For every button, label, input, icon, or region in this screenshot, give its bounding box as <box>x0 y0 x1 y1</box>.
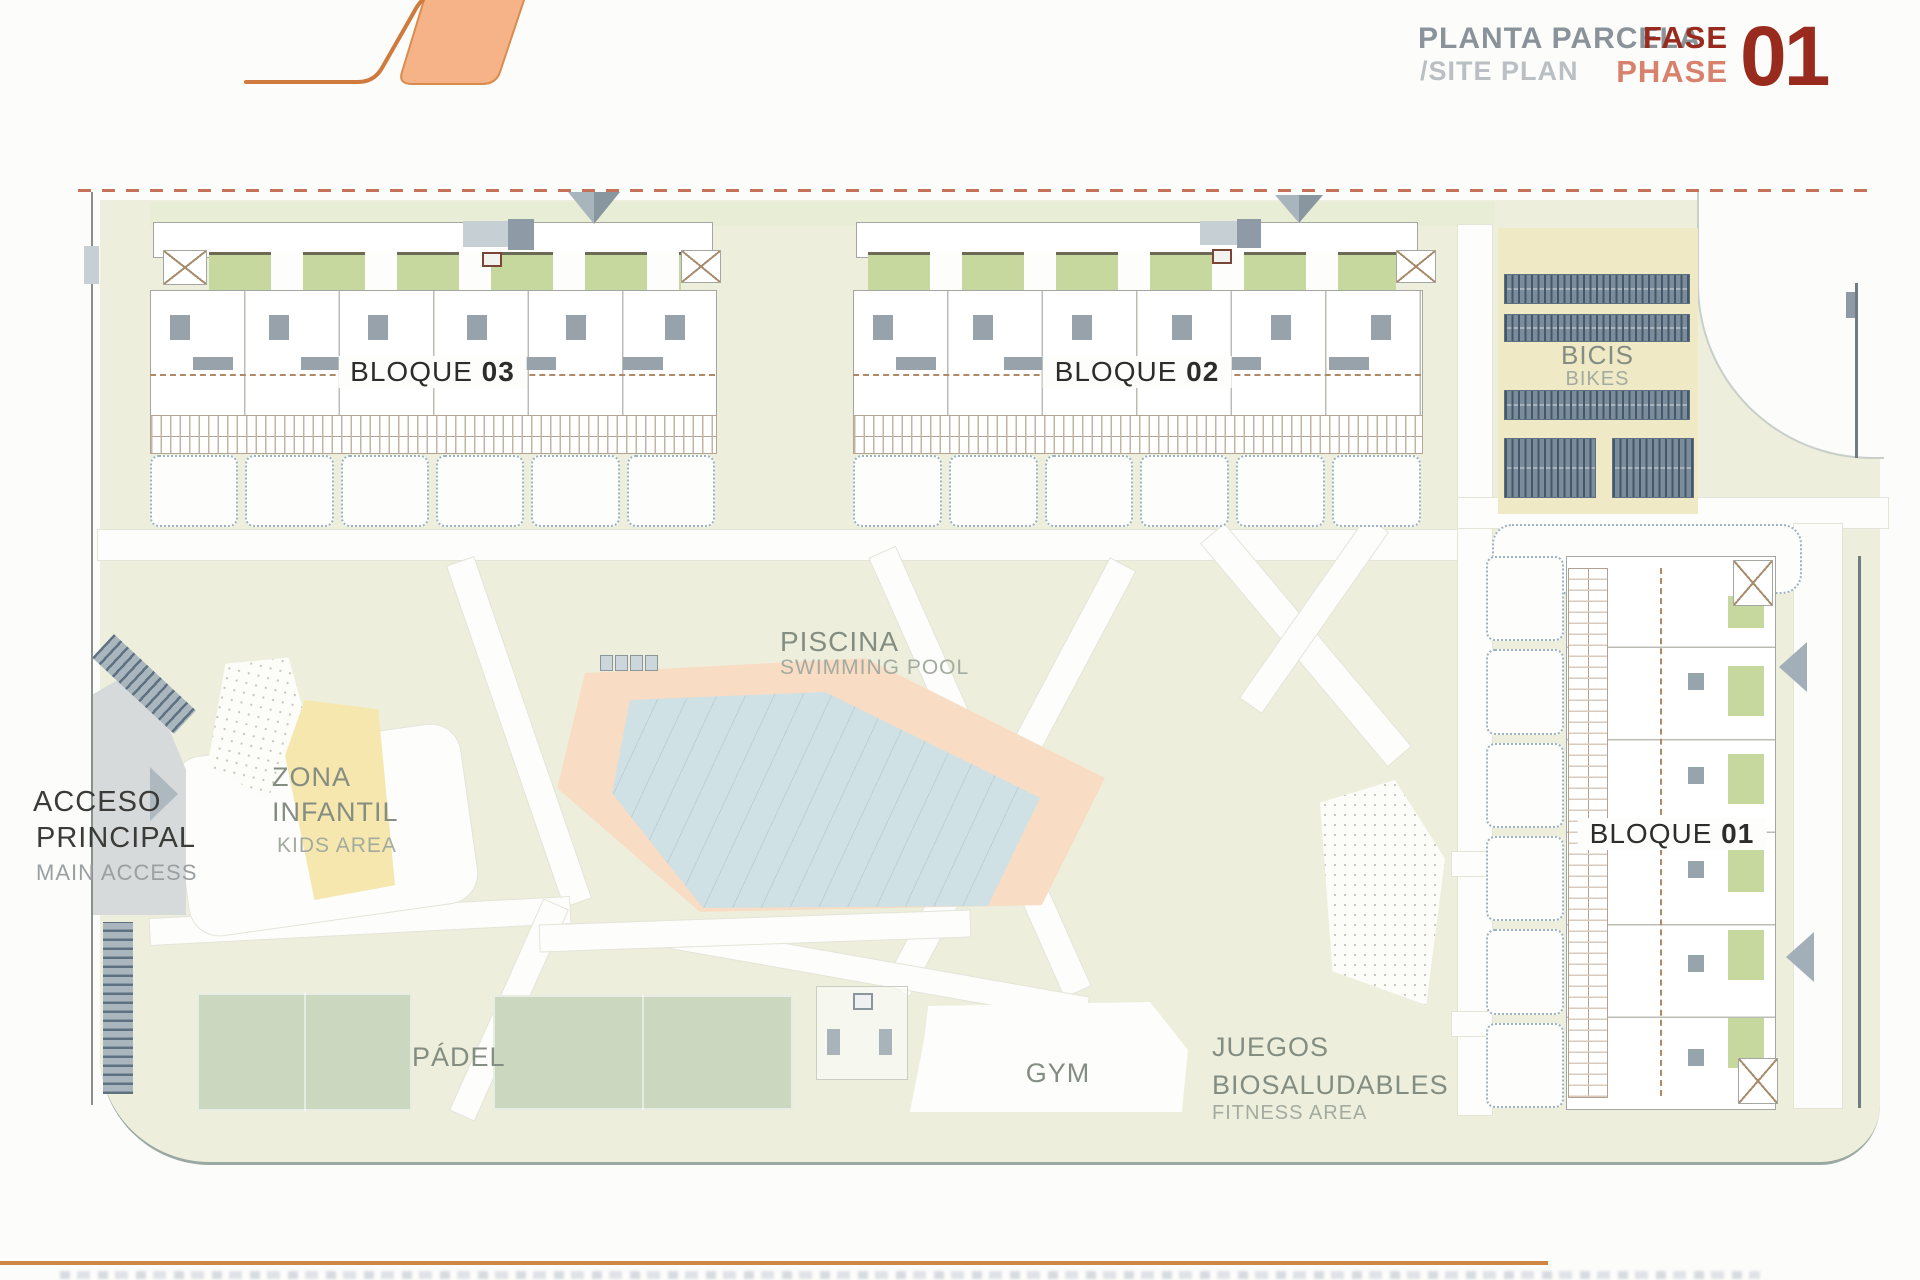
bloque-02-label: BLOQUE 02 <box>1043 356 1232 388</box>
brand-logo-icon <box>228 0 538 96</box>
equipment-plot <box>816 986 908 1080</box>
footer-rule <box>0 1261 1548 1265</box>
pool-label-es: PISCINA <box>780 626 899 658</box>
bike-rack <box>1504 438 1596 498</box>
phase-label-en: PHASE <box>1580 54 1728 90</box>
pool-steps <box>600 655 658 671</box>
stairs-icon <box>163 250 207 285</box>
padel-court <box>493 995 793 1110</box>
building-bloque-03: BLOQUE 03 <box>145 219 720 531</box>
fitness-label-es1: JUEGOS <box>1212 1032 1329 1063</box>
building-bloque-01: BLOQUE 01 <box>1566 556 1778 1108</box>
stairs-icon <box>1396 250 1436 283</box>
bikes-label-en: BIKES <box>1510 368 1685 391</box>
equipment-icon <box>853 993 873 1010</box>
cut-off-legend-text <box>60 1271 1760 1279</box>
kids-label-es1: ZONA <box>272 762 351 793</box>
boundary-wall <box>1855 283 1858 458</box>
bloque-01-garden-plots <box>1486 556 1564 1108</box>
road-edge-line <box>91 192 93 1105</box>
bikes-label-es: BICIS <box>1510 340 1685 371</box>
padel-court <box>197 993 412 1111</box>
bench <box>879 1029 892 1055</box>
bike-rack <box>1504 314 1690 342</box>
parking-strip <box>103 922 133 1094</box>
bloque-03-label: BLOQUE 03 <box>338 356 527 388</box>
kids-label-es2: INFANTIL <box>272 797 399 828</box>
gym-label: GYM <box>1008 1058 1108 1089</box>
property-boundary-line <box>78 189 1874 192</box>
phase-number: 01 <box>1740 18 1827 94</box>
stairs-icon <box>1738 1058 1778 1104</box>
stairs-icon <box>1733 560 1773 606</box>
utility-box <box>463 221 508 247</box>
page-subtitle: /SITE PLAN <box>1420 56 1579 87</box>
bench <box>827 1029 840 1055</box>
padel-label: PÁDEL <box>412 1042 498 1073</box>
access-label-es2: PRINCIPAL <box>36 822 196 855</box>
kids-label-en: KIDS AREA <box>277 834 397 858</box>
walkway <box>98 530 1488 560</box>
walkway <box>1794 524 1842 1108</box>
meter-icon <box>1212 249 1232 264</box>
site-plan-page: PLANTA PARCELA /SITE PLAN FASE PHASE 01 <box>0 0 1920 1280</box>
boundary-wall <box>1858 556 1861 1108</box>
bike-rack <box>1504 274 1690 304</box>
phase-label-es: FASE <box>1600 20 1728 56</box>
bike-rack <box>1504 390 1690 420</box>
utility-box <box>1237 219 1261 248</box>
fitness-label-es2: BIOSALUDABLES <box>1212 1070 1449 1101</box>
access-label-es1: ACCESO <box>33 786 161 819</box>
stairs-icon <box>681 250 721 283</box>
bloque-01-label: BLOQUE 01 <box>1578 818 1767 850</box>
meter-icon <box>482 252 502 267</box>
utility-box <box>1200 221 1237 245</box>
pool-label-en: SWIMMING POOL <box>780 656 969 680</box>
bus-shelter <box>84 246 99 284</box>
fitness-label-en: FITNESS AREA <box>1212 1102 1367 1125</box>
utility-box <box>508 219 534 250</box>
bike-rack <box>1612 438 1694 498</box>
building-bloque-02: BLOQUE 02 <box>848 219 1426 531</box>
access-label-en: MAIN ACCESS <box>36 860 197 886</box>
